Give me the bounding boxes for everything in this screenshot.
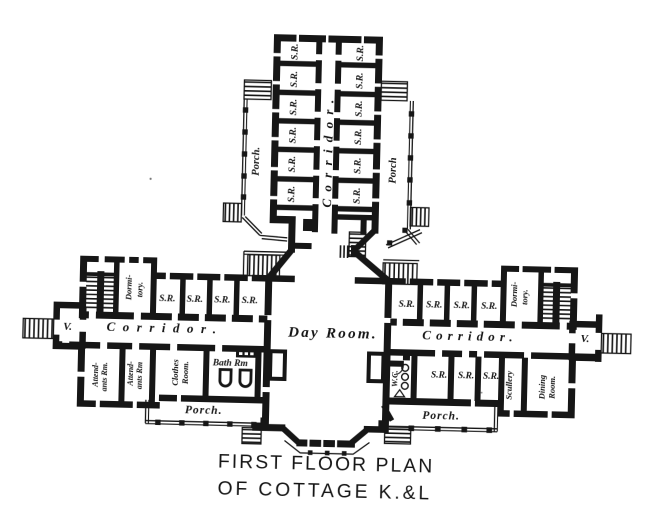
svg-text:S.R.: S.R.	[458, 371, 475, 381]
svg-text:Dormi-: Dormi-	[509, 281, 520, 308]
svg-text:tory.: tory.	[134, 282, 144, 298]
svg-text:S.R.: S.R.	[431, 371, 448, 381]
svg-text:Room.: Room.	[180, 361, 191, 385]
svg-text:S.R.: S.R.	[453, 301, 470, 311]
svg-text:S.R.: S.R.	[426, 301, 443, 311]
svg-text:Room.: Room.	[546, 376, 557, 400]
svg-text:S.R.: S.R.	[355, 72, 365, 89]
svg-text:Corridor.: Corridor.	[319, 92, 337, 208]
svg-text:S.R.: S.R.	[356, 45, 366, 62]
svg-text:S.R.: S.R.	[159, 294, 176, 304]
svg-text:Dormi-: Dormi-	[123, 274, 134, 301]
svg-text:S.R.: S.R.	[354, 128, 364, 145]
svg-text:Clothes: Clothes	[170, 358, 181, 385]
svg-text:Porch: Porch	[387, 157, 399, 184]
svg-text:ants Rm.: ants Rm.	[99, 362, 109, 392]
svg-text:S.R.: S.R.	[288, 156, 298, 173]
svg-text:Bath Rm: Bath Rm	[212, 358, 248, 369]
svg-text:S.R.: S.R.	[289, 99, 299, 116]
svg-text:V.: V.	[63, 321, 72, 333]
svg-text:S.R.: S.R.	[481, 302, 498, 312]
svg-text:Porch.: Porch.	[251, 147, 263, 176]
svg-text:Porch.: Porch.	[185, 404, 223, 417]
svg-text:Porch.: Porch.	[422, 410, 460, 423]
svg-text:S.R.: S.R.	[214, 296, 231, 306]
svg-text:S.R.: S.R.	[483, 372, 500, 382]
svg-text:S.R.: S.R.	[289, 127, 299, 144]
svg-text:S.R.: S.R.	[186, 295, 203, 305]
svg-text:S.R.: S.R.	[353, 187, 363, 204]
svg-text:W.C.: W.C.	[389, 370, 399, 387]
svg-text:Corridor.: Corridor.	[106, 319, 223, 337]
svg-text:S.R.: S.R.	[287, 186, 297, 203]
svg-text:Scullery: Scullery	[503, 371, 514, 400]
svg-text:S.R.: S.R.	[291, 43, 301, 60]
svg-text:tory.: tory.	[519, 289, 529, 305]
svg-text:S.R.: S.R.	[290, 71, 300, 88]
svg-text:S.R.: S.R.	[241, 296, 258, 306]
svg-text:S.R.: S.R.	[355, 100, 365, 117]
svg-text:S.R.: S.R.	[353, 157, 363, 174]
svg-text:V.: V.	[580, 333, 589, 345]
svg-text:Corridor.: Corridor.	[422, 327, 518, 344]
svg-text:Day Room.: Day Room.	[287, 324, 378, 342]
svg-text:Dining: Dining	[536, 374, 547, 401]
svg-text:ants Rm: ants Rm	[134, 362, 144, 390]
svg-text:S.R.: S.R.	[398, 300, 415, 310]
